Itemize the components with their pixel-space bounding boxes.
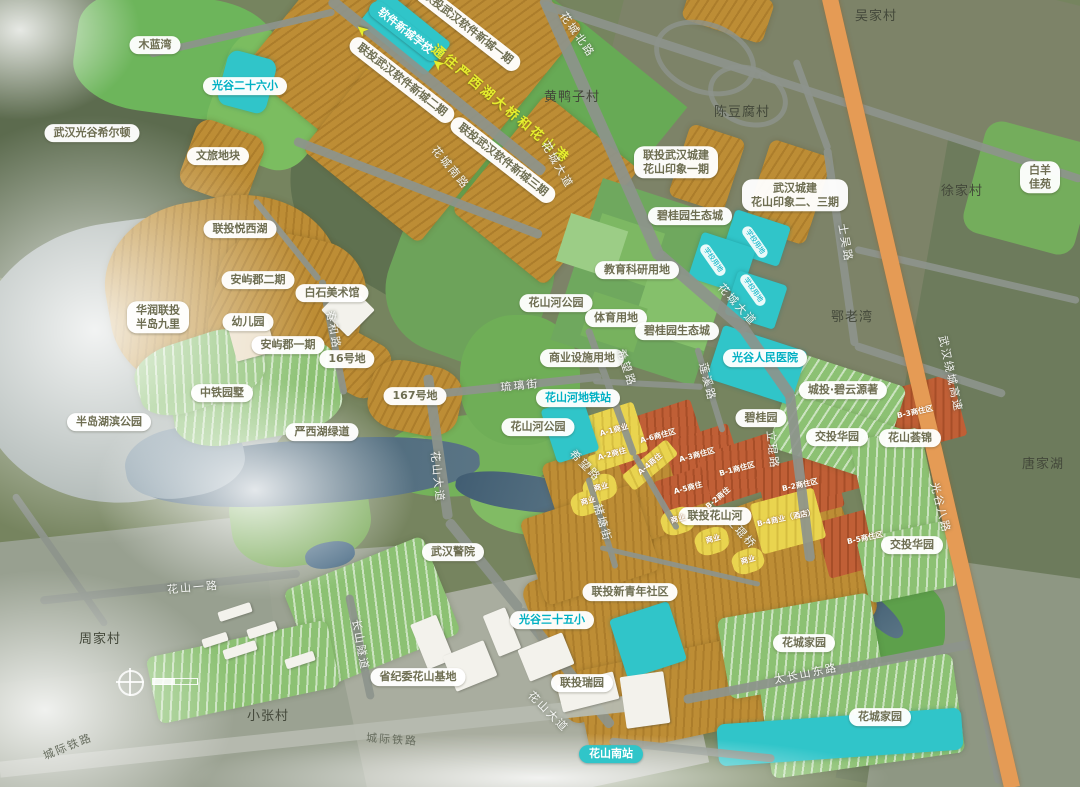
project-label: 严西湖绿道	[286, 423, 359, 441]
school-label: 光谷三十五小	[510, 611, 594, 629]
project-label: 联投花山河	[679, 507, 752, 525]
project-label: 167号地	[384, 387, 447, 405]
project-label: 武汉光谷希尔顿	[45, 124, 140, 142]
project-label: 武汉城建 花山印象二、三期	[742, 179, 848, 211]
project-label: 华润联投 半岛九里	[127, 301, 189, 333]
planning-map-image: 木蓝湾武汉光谷希尔顿文旅地块光谷二十六小联投武汉软件新城一期联投武汉软件新城二期…	[0, 0, 1080, 787]
project-label: 省纪委花山基地	[371, 668, 466, 686]
project-label: 木蓝湾	[130, 36, 181, 54]
scale-bar	[152, 678, 198, 685]
project-label: 白石美术馆	[296, 284, 369, 302]
school-label: 光谷二十六小	[203, 77, 287, 95]
station-label: 花山南站	[579, 745, 643, 763]
project-label: 安屿郡二期	[222, 271, 295, 289]
project-label: 文旅地块	[187, 147, 249, 165]
building	[620, 671, 671, 729]
project-label: 城投·碧云源著	[799, 381, 887, 399]
village-label: 黄鸭子村	[544, 90, 600, 106]
project-label: 碧桂园	[736, 409, 787, 427]
project-label: 交投华园	[806, 428, 868, 446]
village-label: 小张村	[247, 709, 289, 725]
project-label: 碧桂园生态城	[648, 207, 732, 225]
project-label: 花山河公园	[502, 418, 575, 436]
project-label: 教育科研用地	[595, 261, 679, 279]
project-label: 花城家园	[773, 634, 835, 652]
compass-icon	[118, 670, 144, 696]
project-label: 花山荟锦	[879, 429, 941, 447]
village-label: 鄂老湾	[831, 310, 873, 326]
project-label: 商业设施用地	[540, 349, 624, 367]
project-label: 中铁园墅	[191, 384, 253, 402]
project-label: 16号地	[319, 350, 374, 368]
school-label: 光谷人民医院	[723, 349, 807, 367]
village-label: 吴家村	[855, 9, 897, 25]
village-label: 陈豆腐村	[714, 105, 770, 121]
project-label: 联投武汉城建 花山印象一期	[634, 146, 718, 178]
project-label: 联投瑞园	[551, 674, 613, 692]
project-label: 碧桂园生态城	[635, 322, 719, 340]
village-label: 周家村	[79, 632, 121, 648]
project-label: 花城家园	[849, 708, 911, 726]
village-label: 唐家湖	[1022, 457, 1064, 473]
project-label: 联投悦西湖	[204, 220, 277, 238]
project-label: 幼儿园	[223, 313, 274, 331]
village-label: 徐家村	[941, 184, 983, 200]
school-label: 花山河地铁站	[536, 389, 620, 407]
project-label: 交投华园	[881, 536, 943, 554]
project-label: 武汉警院	[422, 543, 484, 561]
project-label: 花山河公园	[520, 294, 593, 312]
project-label: 安屿郡一期	[252, 336, 325, 354]
project-label: 半岛湖滨公园	[67, 413, 151, 431]
project-label: 联投新青年社区	[583, 583, 678, 601]
project-label: 白羊佳苑	[1020, 161, 1060, 193]
